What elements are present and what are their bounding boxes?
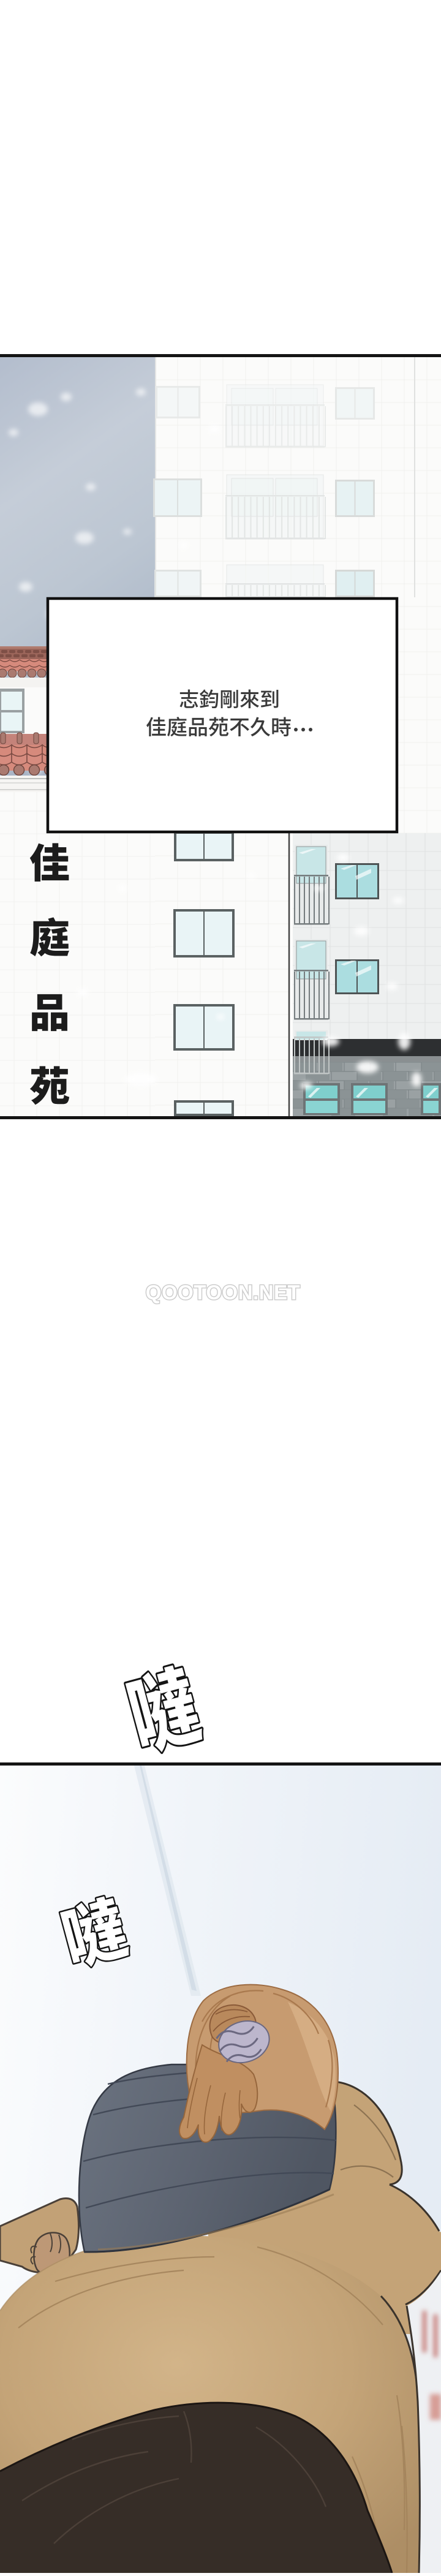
svg-text:QOOTOON.NET: QOOTOON.NET	[146, 1281, 300, 1304]
